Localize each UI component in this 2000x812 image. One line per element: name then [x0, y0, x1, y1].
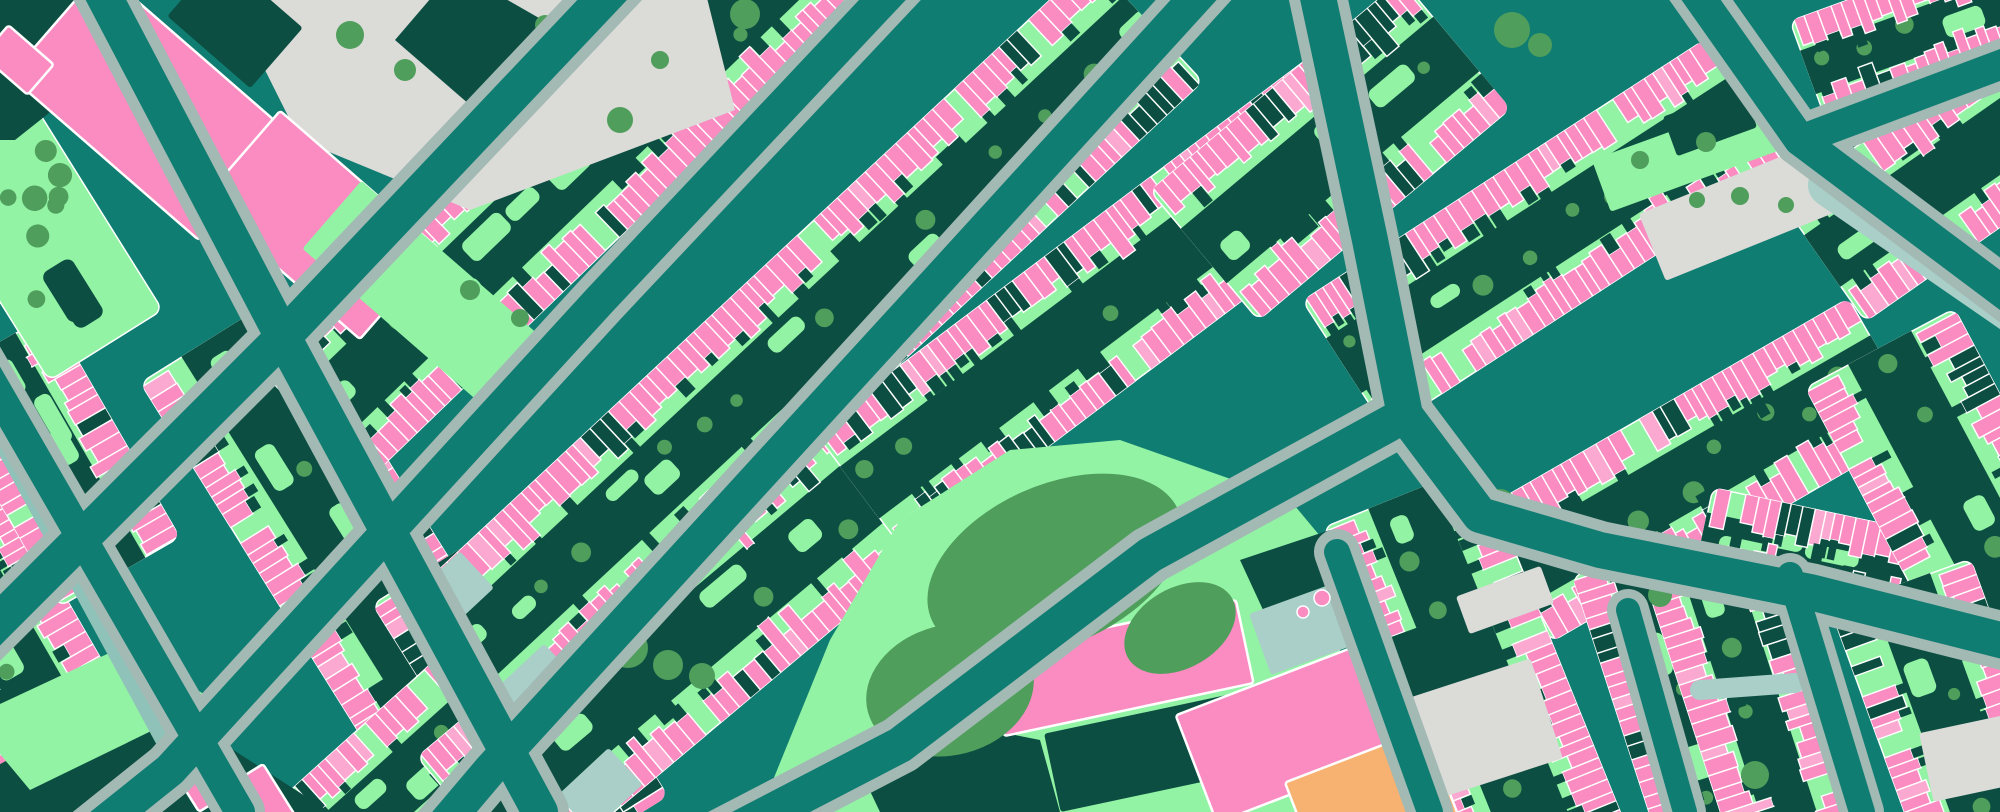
tree-icon [1731, 187, 1749, 205]
tree-icon [689, 663, 715, 689]
pink-dot-1 [1314, 590, 1330, 606]
map-viewport[interactable]: Stylized residential city map — pink bui… [0, 0, 2000, 812]
tree-icon [394, 59, 416, 81]
tree-icon [730, 0, 760, 29]
tree-icon [511, 309, 529, 327]
pink-dot-2 [1297, 606, 1309, 618]
tree-icon [1631, 151, 1649, 169]
tree-icon [460, 280, 480, 300]
tree-icon [336, 21, 364, 49]
tree-icon [1689, 192, 1705, 208]
tree-icon [1778, 197, 1794, 213]
tree-icon [1696, 132, 1716, 152]
tree-icon [653, 650, 683, 680]
tree-icon [607, 107, 633, 133]
tree-icon [651, 51, 669, 69]
tree-icon [1528, 33, 1552, 57]
verge-c1 [1700, 683, 1795, 690]
map-canvas: Stylized residential city map — pink bui… [0, 0, 2000, 812]
tree-icon [1494, 12, 1530, 48]
tree-icon [1741, 761, 1769, 789]
